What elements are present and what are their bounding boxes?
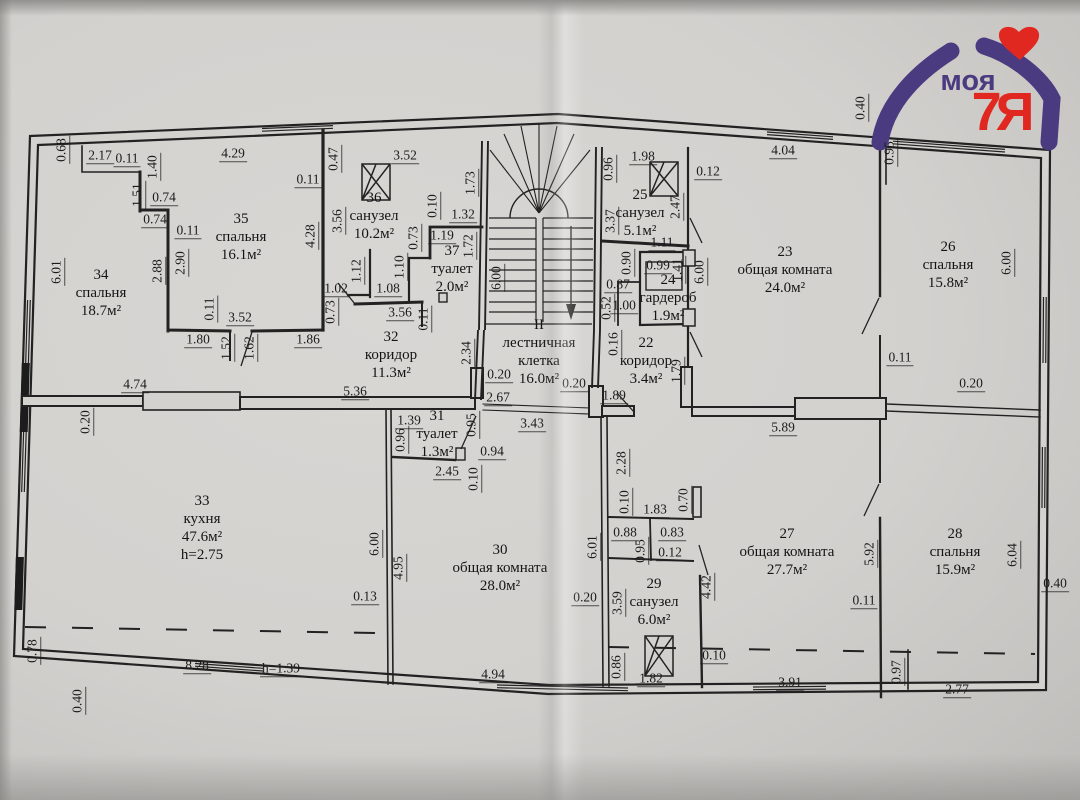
dimension-label: 1.82 bbox=[637, 671, 665, 687]
dimension-label: 2.47 bbox=[668, 193, 684, 221]
dimension-label: 0.11 bbox=[174, 223, 201, 239]
room-area: 15.9м² bbox=[930, 561, 981, 579]
dimension-label: 6.01 bbox=[585, 533, 601, 561]
dimension-label: 0.95 bbox=[633, 537, 649, 565]
dimension-label: 3.52 bbox=[226, 310, 254, 326]
room-label-22: 22коридор3.4м² bbox=[620, 334, 672, 388]
dimension-label: 8.28 bbox=[183, 658, 211, 674]
room-label-31: 31туалет1.3м² bbox=[416, 407, 457, 461]
dimension-label: 0.90 bbox=[619, 249, 635, 277]
dimension-label: 0.78 bbox=[25, 637, 41, 665]
dimension-label: 4.42 bbox=[699, 573, 715, 601]
dimension-label: 0.11 bbox=[202, 295, 218, 322]
room-name: кухня bbox=[181, 510, 223, 528]
room-num: 34 bbox=[76, 266, 127, 284]
dimension-label: 4.94 bbox=[479, 667, 507, 683]
dimension-label: 4.95 bbox=[391, 554, 407, 582]
dimension-label: 4.29 bbox=[219, 146, 247, 162]
dimension-label: 4.74 bbox=[121, 377, 149, 393]
room-name: общая комната bbox=[738, 261, 833, 279]
room-name: гардероб bbox=[639, 289, 696, 307]
dimension-label: 0.11 bbox=[416, 305, 432, 332]
dimension-label: 1.80 bbox=[184, 332, 212, 348]
room-num: 36 bbox=[349, 189, 398, 207]
room-area: 1.9м² bbox=[639, 307, 696, 325]
room-name: туалет bbox=[431, 260, 472, 278]
dimension-label: 2.67 bbox=[484, 390, 512, 406]
scanned-floor-plan: моя 7Я 0.682.170.111.404.291.510.740.740… bbox=[0, 0, 1080, 800]
room-label-37: 37туалет2.0м² bbox=[431, 242, 472, 296]
dimension-label: 6.00 bbox=[999, 249, 1015, 277]
dimension-label: 4.28 bbox=[303, 222, 319, 250]
dimension-label: 1.40 bbox=[145, 153, 161, 181]
room-area: 24.0м² bbox=[738, 279, 833, 297]
dimension-label: 5.89 bbox=[769, 420, 797, 436]
room-num: 31 bbox=[416, 407, 457, 425]
dimension-label: 3.56 bbox=[386, 305, 414, 321]
dimension-label: 4.04 bbox=[769, 143, 797, 159]
room-name: санузел bbox=[615, 204, 664, 222]
dimension-label: 1.51 bbox=[130, 181, 146, 209]
room-area: 2.0м² bbox=[431, 278, 472, 296]
dimension-label: 2.17 bbox=[86, 148, 114, 164]
dimension-label: 0.11 bbox=[886, 350, 913, 366]
dimension-label: 0.10 bbox=[700, 648, 728, 664]
dimension-label: 1.83 bbox=[641, 502, 669, 518]
dimension-label: 0.74 bbox=[141, 212, 169, 228]
room-num: 24 bbox=[639, 271, 696, 289]
dimension-label: 2.77 bbox=[943, 682, 971, 698]
room-num: 23 bbox=[738, 243, 833, 261]
room-label-29: 29санузел6.0м² bbox=[629, 575, 678, 629]
dimension-label: 1.00 bbox=[610, 298, 638, 314]
room-area: 15.8м² bbox=[923, 274, 974, 292]
dimension-label: 3.91 bbox=[776, 675, 804, 691]
dimension-label: 3.59 bbox=[610, 589, 626, 617]
room-name: спальня bbox=[930, 543, 981, 561]
dimension-label: 0.40 bbox=[1041, 576, 1069, 592]
dimension-label: 0.68 bbox=[54, 136, 70, 164]
room-num: 25 bbox=[615, 186, 664, 204]
dimension-label: 2.90 bbox=[173, 249, 189, 277]
dimension-label: 1.52 bbox=[219, 334, 235, 362]
room-name: общая комната bbox=[740, 543, 835, 561]
room-label-35: 35спальня16.1м² bbox=[216, 210, 267, 264]
dimension-label: 0.87 bbox=[604, 277, 632, 293]
dimension-label: 0.95 bbox=[464, 411, 480, 439]
room-label-25: 25санузел5.1м² bbox=[615, 186, 664, 240]
room-num: 32 bbox=[365, 328, 417, 346]
room-area: 27.7м² bbox=[740, 561, 835, 579]
room-area: 18.7м² bbox=[76, 302, 127, 320]
dimension-label: 0.12 bbox=[656, 545, 684, 561]
dimension-label: 5.92 bbox=[862, 540, 878, 568]
dimension-label: 0.74 bbox=[150, 190, 178, 206]
dimension-label: 0.96 bbox=[393, 426, 409, 454]
room-name: спальня bbox=[216, 228, 267, 246]
room-area: 6.0м² bbox=[629, 611, 678, 629]
dimension-label: 0.73 bbox=[406, 224, 422, 252]
room-num: 35 bbox=[216, 210, 267, 228]
dimension-label: 0.11 bbox=[850, 593, 877, 609]
dimension-label: 1.32 bbox=[449, 207, 477, 223]
dimension-label: 0.83 bbox=[658, 525, 686, 541]
room-label-26: 26спальня15.8м² bbox=[923, 238, 974, 292]
room-name: коридор bbox=[365, 346, 417, 364]
dimension-label: 6.00 bbox=[367, 530, 383, 558]
dimension-label: 0.40 bbox=[853, 94, 869, 122]
paper-shadow-left bbox=[0, 0, 12, 800]
dimension-label: 1.02 bbox=[322, 281, 350, 297]
dimension-label: 6.04 bbox=[1005, 541, 1021, 569]
dimension-label: 0.96 bbox=[601, 155, 617, 183]
dimension-label: 0.86 bbox=[609, 653, 625, 681]
dimension-label: 0.47 bbox=[326, 145, 342, 173]
dimension-label: 2.88 bbox=[150, 257, 166, 285]
room-num: 27 bbox=[740, 525, 835, 543]
dimension-label: 0.40 bbox=[70, 687, 86, 715]
room-label-27: 27общая комната27.7м² bbox=[740, 525, 835, 579]
dimension-label: 0.97 bbox=[889, 658, 905, 686]
room-num: 33 bbox=[181, 492, 223, 510]
dimension-label: 1.73 bbox=[463, 169, 479, 197]
room-num: 30 bbox=[453, 541, 548, 559]
room-name: санузел bbox=[349, 207, 398, 225]
dimension-label: 2.45 bbox=[433, 464, 461, 480]
dimension-label: 5.36 bbox=[341, 384, 369, 400]
dimension-label: 1.12 bbox=[349, 257, 365, 285]
dimension-label: 0.10 bbox=[617, 488, 633, 516]
dimension-label: h=1.39 bbox=[260, 661, 302, 677]
room-extra: h=2.75 bbox=[181, 546, 223, 564]
paper-shadow-bottom bbox=[0, 754, 1080, 800]
dimension-label: 0.11 bbox=[294, 172, 321, 188]
room-num: 28 bbox=[930, 525, 981, 543]
dimension-label: 0.94 bbox=[478, 444, 506, 460]
room-area: 16.1м² bbox=[216, 246, 267, 264]
room-label-33: 33кухня47.6м²h=2.75 bbox=[181, 492, 223, 564]
dimension-label: 0.95 bbox=[882, 139, 898, 167]
paper-crease bbox=[538, 0, 584, 800]
dimension-label: 1.89 bbox=[600, 388, 628, 404]
dimension-label: 0.20 bbox=[957, 376, 985, 392]
dimension-label: 0.20 bbox=[78, 408, 94, 436]
dimension-label: 3.52 bbox=[391, 148, 419, 164]
room-label-24: 24гардероб1.9м² bbox=[639, 271, 696, 325]
room-name: спальня bbox=[76, 284, 127, 302]
dimension-label: 1.86 bbox=[294, 332, 322, 348]
room-num: 37 bbox=[431, 242, 472, 260]
room-label-32: 32коридор11.3м² bbox=[365, 328, 417, 382]
dimension-label: 1.08 bbox=[374, 281, 402, 297]
dimension-label: 6.01 bbox=[49, 258, 65, 286]
room-label-34: 34спальня18.7м² bbox=[76, 266, 127, 320]
dimension-label: 0.11 bbox=[113, 151, 140, 167]
room-area: 3.4м² bbox=[620, 370, 672, 388]
dimension-label: 1.10 bbox=[392, 253, 408, 281]
dimension-label: 0.10 bbox=[466, 465, 482, 493]
room-area: 28.0м² bbox=[453, 577, 548, 595]
room-label-30: 30общая комната28.0м² bbox=[453, 541, 548, 595]
dimension-label: 3.56 bbox=[330, 207, 346, 235]
room-area: 11.3м² bbox=[365, 364, 417, 382]
room-name: туалет bbox=[416, 425, 457, 443]
dimension-label: 6.00 bbox=[489, 264, 505, 292]
dimension-label: 2.34 bbox=[459, 339, 475, 367]
paper-shadow-top bbox=[0, 0, 1080, 16]
room-label-23: 23общая комната24.0м² bbox=[738, 243, 833, 297]
room-label-28: 28спальня15.9м² bbox=[930, 525, 981, 579]
room-name: общая комната bbox=[453, 559, 548, 577]
room-name: санузел bbox=[629, 593, 678, 611]
dimension-label: 0.12 bbox=[694, 164, 722, 180]
dimension-label: 1.98 bbox=[629, 149, 657, 165]
room-area: 1.3м² bbox=[416, 443, 457, 461]
dimension-label: 2.28 bbox=[614, 449, 630, 477]
room-name: коридор bbox=[620, 352, 672, 370]
room-num: 26 bbox=[923, 238, 974, 256]
room-label-36: 36санузел10.2м² bbox=[349, 189, 398, 243]
dimension-label: 1.62 bbox=[242, 334, 258, 362]
room-num: 22 bbox=[620, 334, 672, 352]
dimension-label: 0.10 bbox=[425, 192, 441, 220]
room-area: 10.2м² bbox=[349, 225, 398, 243]
room-area: 5.1м² bbox=[615, 222, 664, 240]
dimension-label: 0.13 bbox=[351, 589, 379, 605]
dimension-label: 0.73 bbox=[323, 298, 339, 326]
room-num: 29 bbox=[629, 575, 678, 593]
room-area: 47.6м² bbox=[181, 528, 223, 546]
dimension-label: 0.70 bbox=[676, 486, 692, 514]
room-name: спальня bbox=[923, 256, 974, 274]
